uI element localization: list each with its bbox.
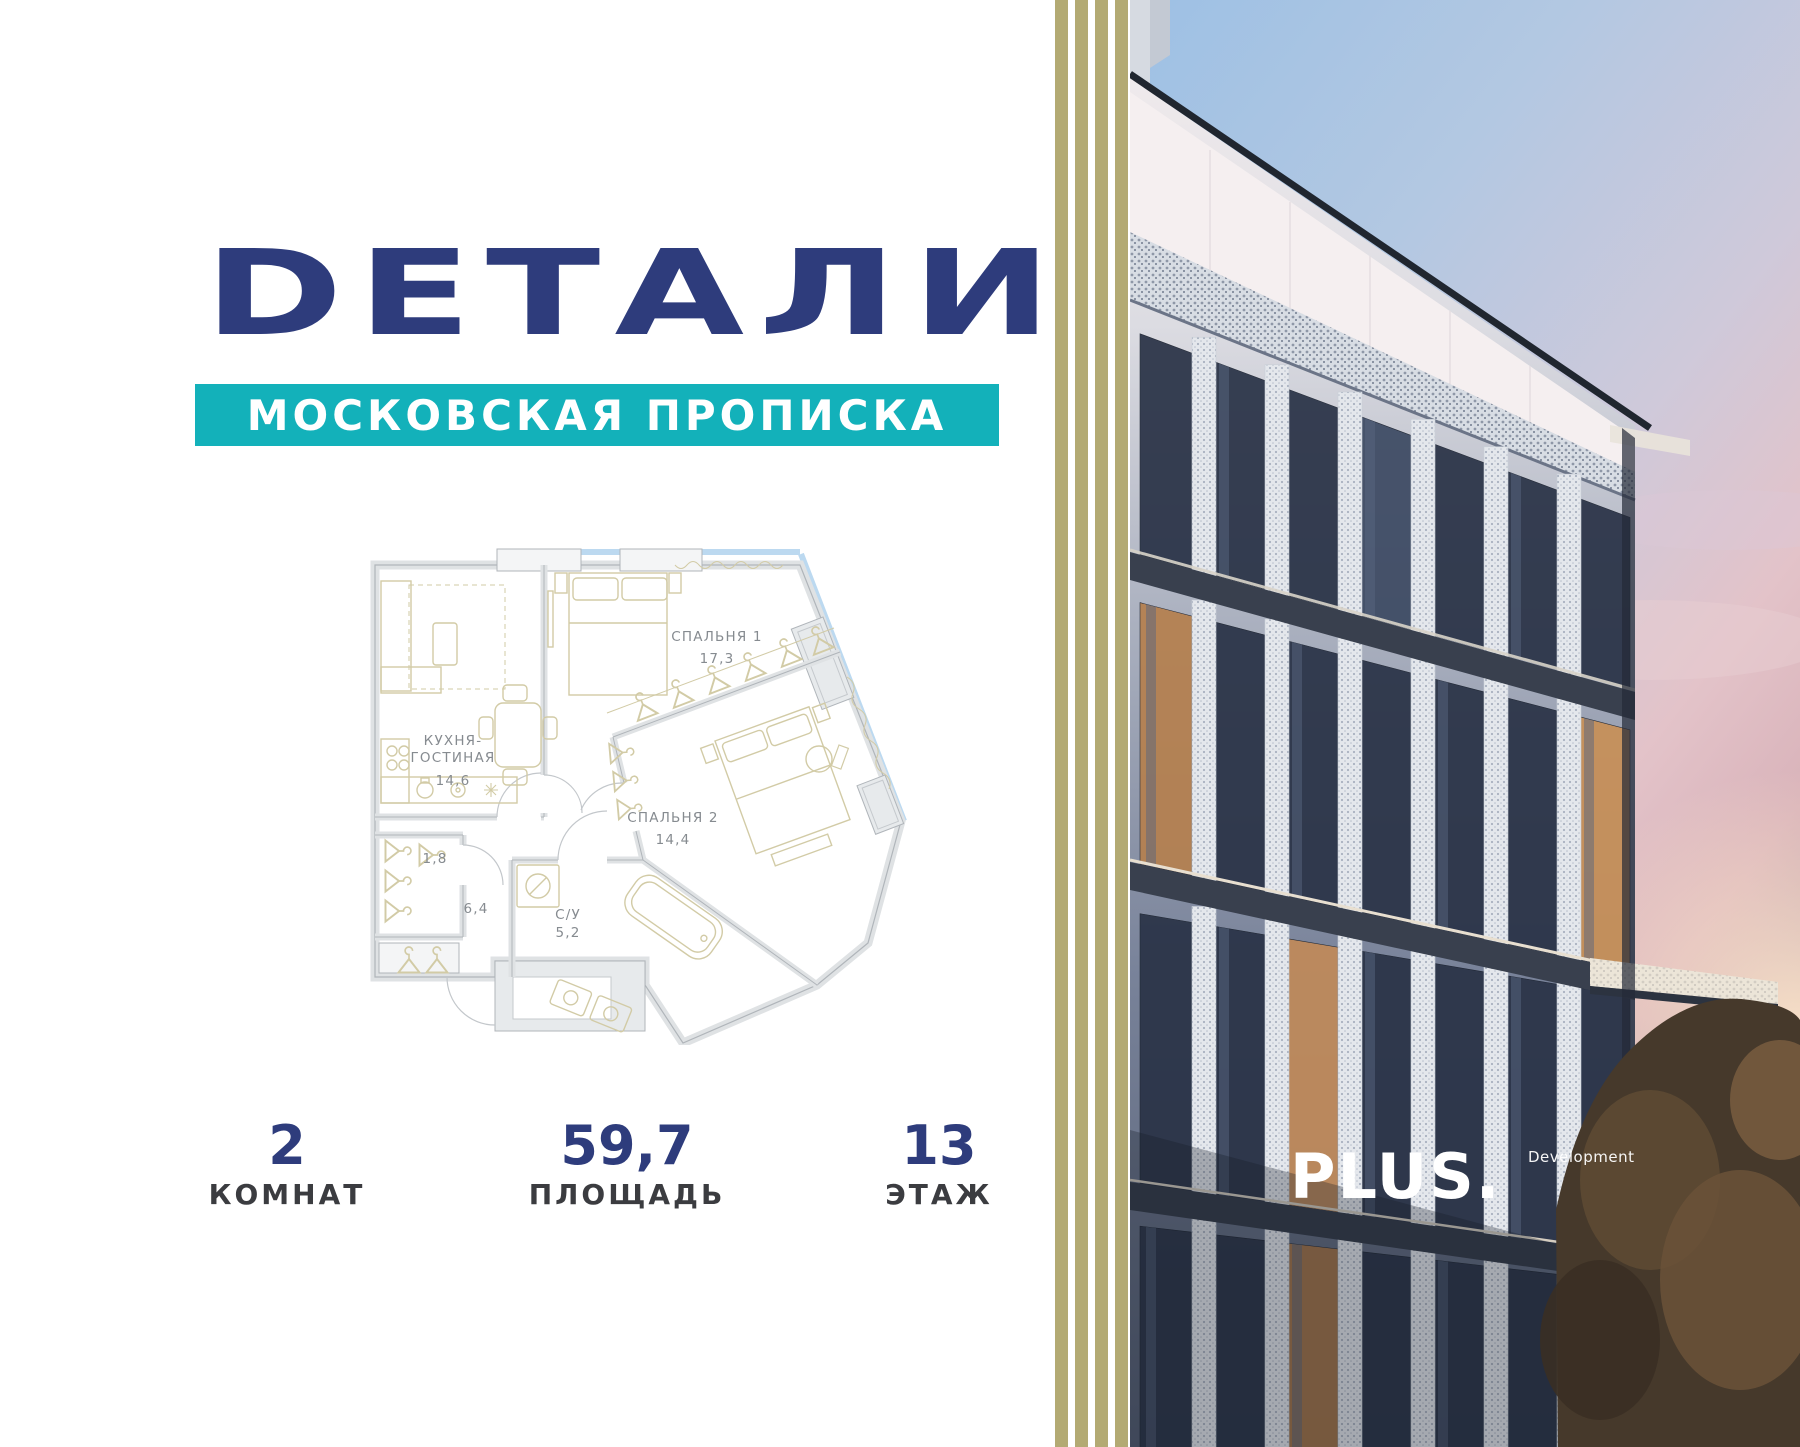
stat-floor: 13 ЭТАЖ	[817, 1118, 1061, 1211]
stat-rooms-label: КОМНАТ	[165, 1178, 409, 1211]
room-area-bathroom: 5,2	[555, 925, 580, 941]
room-area-kitchen: 14,6	[436, 773, 471, 789]
window-sill	[497, 549, 581, 571]
room-label-bedroom2: СПАЛЬНЯ 2	[627, 810, 718, 826]
room-label-kitchen-2: ГОСТИНАЯ	[411, 750, 496, 766]
floor-plan: СПАЛЬНЯ 1 17,3 КУХНЯ- ГОСТИНАЯ 14,6 СПАЛ…	[345, 545, 1005, 1045]
room-area-hall: 6,4	[463, 901, 488, 917]
developer-logo-suffix: Development	[1528, 1148, 1634, 1166]
stats-row: 2 КОМНАТ 59,7 ПЛОЩАДЬ 13 ЭТАЖ	[0, 1118, 1055, 1238]
subtitle-band: МОСКОВСКАЯ ПРОПИСКА	[195, 384, 999, 446]
stat-area: 59,7 ПЛОЩАДЬ	[505, 1118, 749, 1211]
project-logo: DЕТАЛИ	[204, 234, 1066, 352]
pinstripe-divider	[1055, 0, 1130, 1447]
developer-logo: PLUS.	[1290, 1146, 1501, 1208]
building-photo: PLUS. Development	[1130, 0, 1800, 1447]
room-label-bathroom: С/У	[555, 907, 581, 923]
stat-floor-value: 13	[817, 1118, 1061, 1174]
room-area-closet: 1,8	[422, 851, 447, 867]
window-sill	[620, 549, 702, 571]
stat-rooms: 2 КОМНАТ	[165, 1118, 409, 1211]
promo-banner: DЕТАЛИ МОСКОВСКАЯ ПРОПИСКА	[0, 0, 1800, 1447]
subtitle-text: МОСКОВСКАЯ ПРОПИСКА	[247, 391, 948, 440]
room-area-bedroom2: 14,4	[656, 832, 691, 848]
room-label-kitchen-1: КУХНЯ-	[424, 733, 483, 749]
stat-area-label: ПЛОЩАДЬ	[505, 1178, 749, 1211]
shaft-block	[379, 943, 459, 973]
room-area-bedroom1: 17,3	[700, 651, 735, 667]
room-label-bedroom1: СПАЛЬНЯ 1	[671, 629, 762, 645]
stat-area-value: 59,7	[505, 1118, 749, 1174]
stat-floor-label: ЭТАЖ	[817, 1178, 1061, 1211]
stat-rooms-value: 2	[165, 1118, 409, 1174]
